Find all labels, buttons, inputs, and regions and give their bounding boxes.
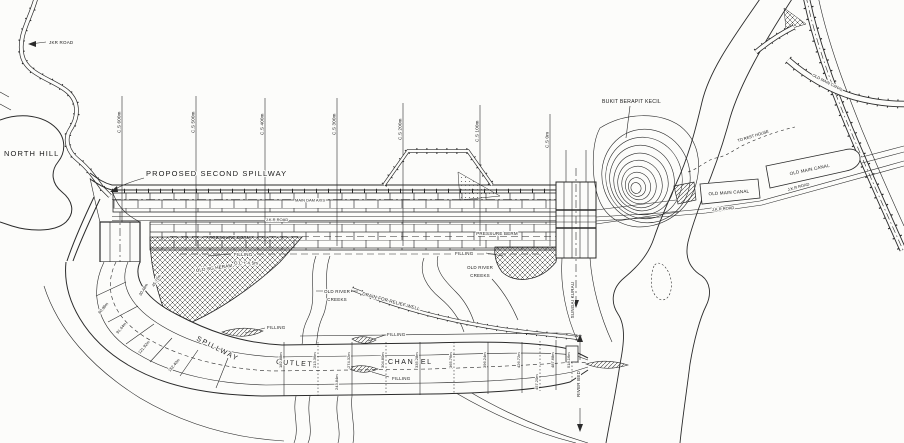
label-filling-4: FILLING bbox=[387, 332, 406, 337]
chainage-335: 335.28m bbox=[414, 352, 419, 368]
label-filling-2: FILLING bbox=[267, 325, 286, 330]
chainage-182: 182.88m bbox=[278, 352, 283, 368]
label-jkr-road-top: JKR ROAD bbox=[49, 40, 74, 45]
spillway-plan-drawing: JKR ROAD NORTH HILL C.S 600m C.S 500m C.… bbox=[0, 0, 904, 443]
label-channel: CHANNEL bbox=[388, 359, 433, 366]
engineering-plan-sheet: JKR ROAD NORTH HILL C.S 600m C.S 500m C.… bbox=[0, 0, 904, 443]
chainage-243: 243.84m bbox=[334, 374, 339, 390]
section-label-0: C.S 0m bbox=[545, 132, 550, 148]
chainage-457: 457.20m bbox=[534, 374, 539, 390]
label-filling-5: FILLING bbox=[392, 376, 411, 381]
label-creeks-1: CREEKS bbox=[327, 297, 347, 302]
label-old-river-2: OLD RIVER bbox=[467, 265, 494, 270]
section-label-200: C.S 200m bbox=[398, 118, 403, 140]
chainage-396: 396.24m bbox=[482, 352, 487, 368]
chainage-304: 304.80m bbox=[380, 352, 385, 368]
section-label-100: C.S 100m bbox=[475, 120, 480, 142]
label-filling-3: FILLING bbox=[455, 251, 474, 256]
section-label-300: C.S 300m bbox=[332, 113, 337, 135]
label-main-dam-axis: MAIN DAM AXIS bbox=[295, 198, 325, 203]
label-sungai-kurau: SUNGAI KURAU bbox=[570, 282, 575, 319]
label-filling-level: O.L + 4.5m bbox=[234, 261, 258, 266]
label-filling-1: FILLING bbox=[234, 252, 253, 257]
label-creeks-2: CREEKS bbox=[470, 273, 490, 278]
label-jkr-road-dam: J.K.R ROAD bbox=[266, 217, 289, 222]
chainage-274: 274.32m bbox=[346, 352, 351, 368]
label-pressure-berm-right: PRESSURE BERM bbox=[476, 231, 518, 236]
label-proposed-second-spillway: PROPOSED SECOND SPILLWAY bbox=[146, 169, 287, 178]
label-river-bed: RIVER BED bbox=[576, 370, 581, 397]
label-bukit-berapit-kecil: BUKIT BERAPIT KECIL bbox=[602, 99, 661, 105]
section-label-500: C.S 500m bbox=[191, 111, 196, 133]
chainage-426: 426.72m bbox=[516, 352, 521, 368]
section-label-600: C.S 600m bbox=[117, 111, 122, 133]
chainage-213: 213.36m bbox=[312, 352, 317, 368]
label-north-hill: NORTH HILL bbox=[4, 149, 59, 158]
chainage-365: 365.76m bbox=[448, 352, 453, 368]
label-old-river-1: OLD RIVER bbox=[324, 289, 351, 294]
section-label-400: C.S 400m bbox=[260, 113, 265, 135]
chainage-518: 518.16m bbox=[566, 352, 571, 368]
chainage-487: 487.68m bbox=[550, 352, 555, 368]
